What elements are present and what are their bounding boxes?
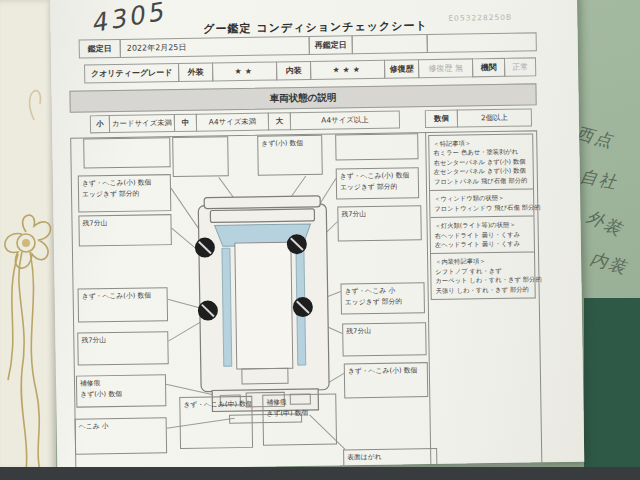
callout-left-2: きず・へこみ(小) 数個 エッジきず 部分的 — [78, 174, 172, 212]
legend-count-desc: 2個以上 — [457, 108, 532, 127]
callout-surface-peel: 表面はがれ — [343, 448, 437, 465]
photo-of-condition-sheet: 西点 自社 外装 内装 4305 グー鑑定 コンディションチェックシート E05… — [0, 0, 640, 480]
callout-left-5: 残7分山 — [77, 331, 169, 365]
callout-right-6: きず・へこみ(小) 数個 — [344, 362, 429, 398]
decorated-sleeve-edge — [0, 0, 56, 470]
callout-top-1 — [172, 136, 229, 177]
callout-bottom-1: きず・へこみ(中) 数個 — [179, 396, 253, 449]
callout-right-4: きず・へこみ 小 エッジきず 部分的 — [340, 282, 424, 314]
notes-section-exterior: ＜特記事項＞ 右ミラー 色あせ・塗装剥がれ 右センターパネル きず(小) 数個 … — [429, 134, 533, 190]
exterior-label: 外装 — [178, 62, 213, 82]
size-legend: 小 カードサイズ未満 中 A4サイズ未満 大 A4サイズ以上 — [90, 110, 405, 133]
legend-large-desc: A4サイズ以上 — [290, 111, 400, 131]
quality-grade-label: クオリティーグレード — [84, 63, 179, 83]
legend-count-label: 数個 — [425, 110, 458, 129]
appraisal-date-label: 鑑定日 — [79, 39, 121, 59]
blank-cell — [427, 32, 537, 53]
callout-bottom-2: 補修痕 きず(中) 数個 — [262, 394, 337, 446]
repair-history-label: 修復歴 — [384, 59, 419, 79]
callout-right-5: 残7分山 — [342, 322, 427, 356]
callout-left-7: へこみ 小 — [75, 417, 168, 454]
re-appraisal-date-label: 再鑑定日 — [309, 35, 353, 55]
car-hood — [210, 209, 314, 223]
serial-number: E053228250B — [448, 13, 512, 23]
interior-stars: ★★★ — [310, 60, 385, 80]
section-header: 車両状態の説明 — [69, 83, 536, 112]
gold-floral-pattern — [0, 0, 56, 470]
legend-medium-desc: A4サイズ未満 — [196, 113, 269, 132]
callout-right-3: 残7分山 — [337, 205, 422, 241]
desk-edge-strip — [0, 467, 640, 480]
car-roof — [235, 242, 293, 369]
special-notes-panel: ＜特記事項＞ 右ミラー 色あせ・塗装剥がれ 右センターパネル きず(小) 数個 … — [428, 133, 536, 300]
callout-right-1 — [335, 133, 418, 160]
legend-large-label: 大 — [268, 112, 291, 130]
callout-left-6: 補修痕 きず(小) 数個 — [76, 374, 166, 407]
legend-small-label: 小 — [90, 115, 110, 133]
notes-section-windows: ＜ウィンドウ類の状態＞ フロントウィンドウ 飛び石傷 部分的 — [430, 189, 533, 217]
notes-section-lights: ＜灯火類(ライト等)の状態＞ 右ヘッドライト 曇り・くすみ 左ヘッドライト 曇り… — [430, 215, 534, 253]
engine-value: 正常 — [504, 57, 536, 77]
callout-left-3: 残7分山 — [78, 214, 171, 246]
car-left-windows — [222, 248, 232, 366]
appraisal-date-row: 鑑定日 2022年2月25日 再鑑定日 — [79, 32, 541, 58]
engine-label: 機関 — [472, 58, 505, 78]
appraisal-date-value: 2022年2月25日 — [120, 36, 310, 58]
count-legend: 数個 2個以上 — [425, 108, 533, 128]
condition-check-sheet-paper: 4305 グー鑑定 コンディションチェックシート E053228250B 鑑定日… — [50, 0, 584, 470]
legend-medium-label: 中 — [174, 114, 197, 132]
handwritten-number: 4305 — [88, 0, 167, 38]
exterior-stars: ★★ — [212, 61, 277, 81]
desk-dark-green-area — [584, 298, 640, 470]
callout-left-4: きず・へこみ(小) 数個 — [78, 287, 169, 322]
callout-right-2: きず・へこみ(小) 数個 エッジきず 部分的 — [336, 167, 419, 199]
legend-small-desc: カードサイズ未満 — [109, 114, 175, 133]
notes-section-interior: ＜内装特記事項＞ シフトノブ すれ・きず カーペット しわ・すれ・きず 部分的 … — [431, 252, 535, 299]
repair-history-value: 修復歴 無 — [418, 58, 473, 78]
car-front-bumper — [204, 196, 320, 209]
callout-left-1 — [83, 137, 170, 168]
callout-top-2: きず(小) 数個 — [257, 135, 323, 176]
re-appraisal-date-value — [352, 34, 428, 54]
quality-grade-row: クオリティーグレード 外装 ★★ 内装 ★★★ 修復歴 修復歴 無 機関 正常 — [84, 57, 544, 83]
interior-label: 内装 — [276, 61, 311, 81]
